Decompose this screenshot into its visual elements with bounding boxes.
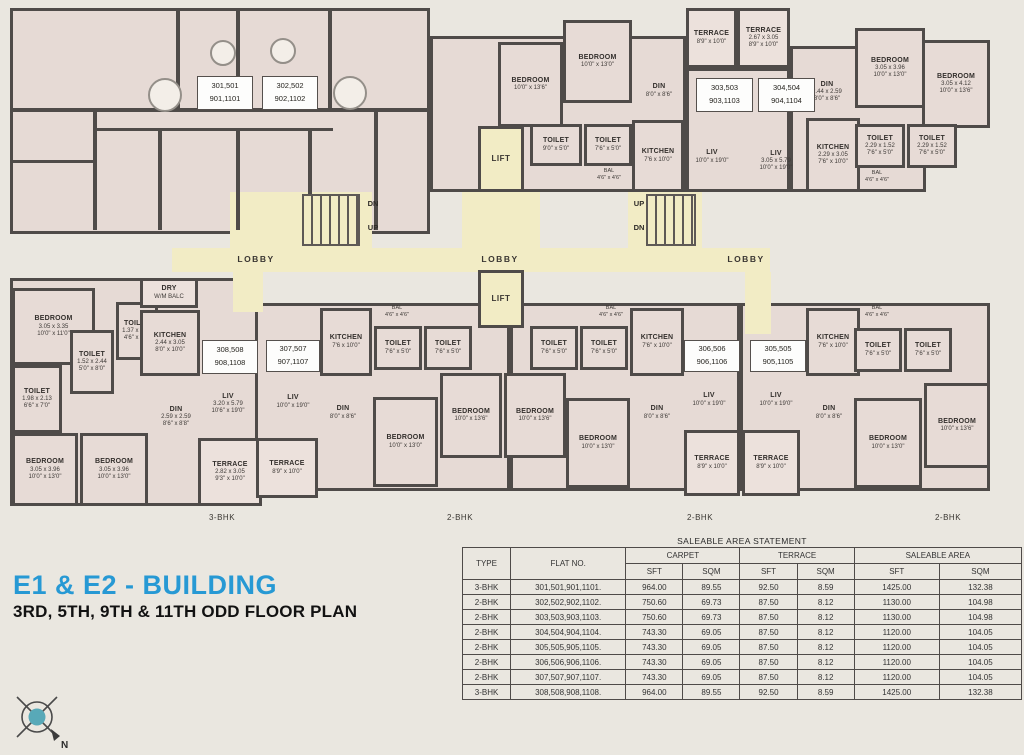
table-cell: 307,507,907,1107. xyxy=(511,670,626,685)
table-cell: 69.05 xyxy=(683,640,740,655)
floor-plan: DNUPUPDNLOBBYLOBBYLOBBYLIFTLIFTBEDROOM10… xyxy=(0,0,1024,536)
table-header-cell: SFT xyxy=(740,564,797,580)
table-cell: 89.55 xyxy=(683,685,740,700)
kitchen-label: 7'6 x 10'0" xyxy=(332,343,359,350)
table-cell: 2-BHK xyxy=(463,610,511,625)
living-label: LIV xyxy=(703,392,715,400)
stair-direction-label: DN xyxy=(634,224,645,233)
dry-balcony-label: DRY xyxy=(161,285,176,293)
dining-table xyxy=(333,76,367,110)
table-header-cell: TERRACE xyxy=(740,548,854,564)
bedroom-label: 10'0" x 13'0" xyxy=(582,444,615,451)
flat-number: 307,507907,1107 xyxy=(266,340,320,372)
kitchen-label: KITCHEN xyxy=(641,334,674,342)
toilet-label: 7'6" x 5'0" xyxy=(915,351,941,358)
table-cell: 308,508,908,1108. xyxy=(511,685,626,700)
toilet-label: TOILET xyxy=(541,340,567,348)
living: LIV10'0" x 19'0" xyxy=(748,386,804,414)
lift: LIFT xyxy=(478,270,524,328)
table-header-cell: CARPET xyxy=(626,548,740,564)
table-cell: 302,502,902,1102. xyxy=(511,595,626,610)
flat-number-label: 902,1102 xyxy=(275,93,306,106)
flat-number: 304,504904,1104 xyxy=(758,78,815,112)
flat-number-label: 903,1103 xyxy=(709,95,740,108)
toilet: TOILET7'6" x 5'0" xyxy=(424,326,472,370)
terrace-label: 8'9" x 10'0" xyxy=(272,469,302,476)
dining-label: 8'6" x 8'8" xyxy=(163,421,189,428)
table-cell: 743.30 xyxy=(626,625,683,640)
wall xyxy=(10,160,95,163)
area-table: TYPEFLAT NO.CARPETTERRACESALEABLE AREASF… xyxy=(462,547,1022,700)
wall xyxy=(374,112,378,230)
flat-number-label: 908,1108 xyxy=(215,357,246,370)
toilet-label: TOILET xyxy=(435,340,461,348)
terrace-label: TERRACE xyxy=(269,460,304,468)
terrace: TERRACE8'9" x 10'0" xyxy=(256,438,318,498)
dining-label: 8'0" x 8'6" xyxy=(814,96,840,103)
table-cell: 1120.00 xyxy=(854,625,939,640)
flat-number-label: 301,501 xyxy=(211,80,238,93)
flat-number: 302,502902,1102 xyxy=(262,76,318,110)
living-label: 10'0" x 19'0" xyxy=(277,403,310,410)
kitchen-label: KITCHEN xyxy=(817,144,850,152)
table-cell: 87.50 xyxy=(740,625,797,640)
terrace-label: 8'9" x 10'0" xyxy=(749,42,779,49)
bedroom: BEDROOM10'0" x 13'6" xyxy=(924,383,990,468)
terrace-label: TERRACE xyxy=(753,455,788,463)
table-cell: 104.05 xyxy=(939,670,1021,685)
table-cell: 2-BHK xyxy=(463,670,511,685)
balcony-table xyxy=(270,38,296,64)
table-cell: 1425.00 xyxy=(854,580,939,595)
kitchen-label: 8'0" x 10'0" xyxy=(155,347,185,354)
balcony: BAL4'6" x 4'6" xyxy=(858,303,896,321)
bedroom-label: 3.05 x 4.12 xyxy=(941,81,971,88)
table-cell: 87.50 xyxy=(740,610,797,625)
bedroom: BEDROOM10'0" x 13'0" xyxy=(566,398,630,488)
table-row: 2-BHK305,505,905,1105.743.3069.0587.508.… xyxy=(463,640,1022,655)
terrace-label: 8'9" x 10'0" xyxy=(697,464,727,471)
bedroom-label: 3.05 x 3.96 xyxy=(30,467,60,474)
bedroom-label: BEDROOM xyxy=(95,458,133,466)
stair-direction: DN xyxy=(626,222,652,234)
flat-number-label: 307,507 xyxy=(279,343,306,356)
table-cell: 303,503,903,1103. xyxy=(511,610,626,625)
kitchen-label: 7'6" x 10'0" xyxy=(818,343,848,350)
table-row: 2-BHK306,506,906,1106.743.3069.0587.508.… xyxy=(463,655,1022,670)
toilet: TOILET1.52 x 2.445'0" x 8'0" xyxy=(70,330,114,394)
flat-number: 301,501901,1101 xyxy=(197,76,253,110)
bedroom-label: 3.05 x 3.35 xyxy=(39,324,69,331)
table-row: 3-BHK308,508,908,1108.964.0089.5592.508.… xyxy=(463,685,1022,700)
lift-label: LIFT xyxy=(492,154,511,163)
table-header-cell: SALEABLE AREA xyxy=(854,548,1021,564)
flat-number-label: 303,503 xyxy=(711,82,738,95)
flat-number: 306,506906,1106 xyxy=(684,340,740,372)
table-row: 2-BHK302,502,902,1102.750.6069.7387.508.… xyxy=(463,595,1022,610)
terrace: TERRACE2.82 x 3.059'3" x 10'0" xyxy=(198,438,262,506)
toilet-label: TOILET xyxy=(915,342,941,350)
unit-type-label: 2-BHK xyxy=(436,511,484,525)
table-cell: 2-BHK xyxy=(463,625,511,640)
living-label: 10'0" x 19'0" xyxy=(760,165,793,172)
toilet-label: 7'6" x 5'0" xyxy=(865,351,891,358)
bedroom-label: 10'0" x 13'6" xyxy=(514,85,547,92)
balcony-label: BAL xyxy=(872,305,882,312)
dining-label: 2.59 x 2.59 xyxy=(161,414,191,421)
living-label: 10'0" x 19'0" xyxy=(760,401,793,408)
terrace-label: TERRACE xyxy=(694,455,729,463)
unit-type-label: 3-BHK xyxy=(198,511,246,525)
dining-label: 8'0" x 8'6" xyxy=(646,92,672,99)
dining: DIN8'0" x 8'6" xyxy=(633,78,685,104)
bedroom: BEDROOM3.05 x 3.9610'0" x 13'0" xyxy=(80,433,148,506)
lobby-stub xyxy=(233,272,263,312)
table-cell: 750.60 xyxy=(626,610,683,625)
table-header-cell: SQM xyxy=(797,564,854,580)
bedroom-label: 10'0" x 13'0" xyxy=(29,474,62,481)
kitchen: KITCHEN2.44 x 3.058'0" x 10'0" xyxy=(140,310,200,376)
unit-type-label-label: 2-BHK xyxy=(687,513,713,522)
toilet-label: 7'6" x 5'0" xyxy=(591,349,617,356)
bedroom-label: BEDROOM xyxy=(35,315,73,323)
dining-label: DIN xyxy=(823,405,836,413)
toilet-label: TOILET xyxy=(543,137,569,145)
balcony-label: 4'6" x 4'6" xyxy=(865,177,889,184)
living-label: LIV xyxy=(770,392,782,400)
table-header-cell: SQM xyxy=(939,564,1021,580)
balcony-label: BAL xyxy=(392,305,402,312)
toilet: TOILET1.98 x 2.136'6" x 7'0" xyxy=(12,365,62,433)
unit-type-label: 2-BHK xyxy=(924,511,972,525)
flat-number: 305,505905,1105 xyxy=(750,340,806,372)
kitchen-label: 7'6 x 10'0" xyxy=(644,157,671,164)
stair-direction-label: UP xyxy=(368,224,378,233)
bedroom-label: BEDROOM xyxy=(452,408,490,416)
balcony: BAL4'6" x 4'6" xyxy=(858,168,896,186)
flat-number-label: 304,504 xyxy=(773,82,800,95)
terrace-label: TERRACE xyxy=(746,27,781,35)
table-cell: 8.12 xyxy=(797,595,854,610)
dining: DIN2.59 x 2.598'6" x 8'8" xyxy=(148,400,204,434)
wall xyxy=(236,128,240,230)
flat-number-label: 305,505 xyxy=(764,343,791,356)
balcony-label: BAL xyxy=(872,170,882,177)
toilet-label: 7'6" x 5'0" xyxy=(541,349,567,356)
terrace-label: 8'9" x 10'0" xyxy=(697,39,727,46)
table-cell: 69.73 xyxy=(683,595,740,610)
kitchen-label: KITCHEN xyxy=(154,332,187,340)
toilet-label: TOILET xyxy=(865,342,891,350)
stair-direction: UP xyxy=(626,198,652,210)
bedroom: BEDROOM10'0" x 13'6" xyxy=(440,373,502,458)
table-cell: 1120.00 xyxy=(854,670,939,685)
kitchen: KITCHEN7'6 x 10'0" xyxy=(632,120,684,192)
flat-number-label: 308,508 xyxy=(216,344,243,357)
table-cell: 1425.00 xyxy=(854,685,939,700)
lift-label: LIFT xyxy=(492,294,511,303)
unit-type-label-label: 2-BHK xyxy=(447,513,473,522)
table-cell: 8.12 xyxy=(797,610,854,625)
table-row: 2-BHK307,507,907,1107.743.3069.0587.508.… xyxy=(463,670,1022,685)
lobby-label: LOBBY xyxy=(228,250,284,268)
lobby-label-label: LOBBY xyxy=(481,254,518,264)
balcony-label: BAL xyxy=(606,305,616,312)
living: LIV10'0" x 19'0" xyxy=(266,388,320,416)
bedroom: BEDROOM10'0" x 13'0" xyxy=(563,20,632,103)
bedroom-label: 10'0" x 13'0" xyxy=(98,474,131,481)
table-header-cell: FLAT NO. xyxy=(511,548,626,580)
living-label: LIV xyxy=(770,150,782,158)
bedroom-label: 10'0" x 13'6" xyxy=(519,416,552,423)
bedroom-label: BEDROOM xyxy=(516,408,554,416)
bedroom: BEDROOM10'0" x 13'0" xyxy=(854,398,922,488)
staircase xyxy=(302,194,360,246)
balcony: BAL4'6" x 4'6" xyxy=(592,303,630,321)
table-cell: 92.50 xyxy=(740,580,797,595)
flat-number: 308,508908,1108 xyxy=(202,340,258,374)
bedroom-label: BEDROOM xyxy=(871,57,909,65)
wall xyxy=(328,8,332,110)
kitchen-label: KITCHEN xyxy=(642,148,675,156)
kitchen-label: 2.44 x 3.05 xyxy=(155,340,185,347)
toilet: TOILET7'6" x 5'0" xyxy=(530,326,578,370)
unit-type-label: 2-BHK xyxy=(676,511,724,525)
toilet-label: 2.29 x 1.52 xyxy=(865,143,895,150)
kitchen: KITCHEN2.29 x 3.057'6" x 10'0" xyxy=(806,118,860,192)
lift: LIFT xyxy=(478,126,524,192)
dining-label: 2.44 x 2.59 xyxy=(812,89,842,96)
bedroom-label: 3.05 x 3.96 xyxy=(99,467,129,474)
dining-label: 8'0" x 8'6" xyxy=(330,414,356,421)
living-label: 10'0" x 19'0" xyxy=(693,401,726,408)
stair-direction: DN xyxy=(360,198,386,210)
table-cell: 304,504,904,1104. xyxy=(511,625,626,640)
dining-label: DIN xyxy=(170,406,183,414)
table-cell: 3-BHK xyxy=(463,580,511,595)
living: LIV3.20 x 5.7910'6" x 19'0" xyxy=(198,386,258,422)
table-cell: 743.30 xyxy=(626,655,683,670)
toilet-label: 2.29 x 1.52 xyxy=(917,143,947,150)
terrace: TERRACE8'9" x 10'0" xyxy=(742,430,800,496)
table-cell: 1130.00 xyxy=(854,595,939,610)
toilet-label: 1.98 x 2.13 xyxy=(22,396,52,403)
flat-number: 303,503903,1103 xyxy=(696,78,753,112)
bedroom-label: 10'0" x 13'0" xyxy=(581,62,614,69)
toilet-label: TOILET xyxy=(24,388,50,396)
bedroom-label: BEDROOM xyxy=(512,77,550,85)
toilet-label: TOILET xyxy=(385,340,411,348)
balcony-label: 4'6" x 4'6" xyxy=(599,312,623,319)
lobby-label: LOBBY xyxy=(472,250,528,268)
kitchen-label: 7'6" x 10'0" xyxy=(642,343,672,350)
table-header-cell: TYPE xyxy=(463,548,511,580)
bedroom-label: BEDROOM xyxy=(387,434,425,442)
table-cell: 8.12 xyxy=(797,655,854,670)
dining: DIN8'0" x 8'6" xyxy=(804,400,854,426)
title-block: E1 & E2 - BUILDING 3RD, 5TH, 9TH & 11TH … xyxy=(13,570,357,622)
toilet-label: 5'0" x 8'0" xyxy=(79,366,105,373)
living-label: 3.20 x 5.79 xyxy=(213,401,243,408)
table-title: SALEABLE AREA STATEMENT xyxy=(462,536,1022,546)
table-cell: 104.05 xyxy=(939,640,1021,655)
dining-label: DIN xyxy=(651,405,664,413)
table-cell: 8.12 xyxy=(797,640,854,655)
toilet-label: 7'6" x 5'0" xyxy=(867,150,893,157)
table-cell: 1120.00 xyxy=(854,640,939,655)
dining-table xyxy=(148,78,182,112)
table-cell: 2-BHK xyxy=(463,595,511,610)
compass-icon: N xyxy=(8,688,68,755)
balcony: BAL4'6" x 4'6" xyxy=(378,303,416,321)
toilet-label: TOILET xyxy=(79,351,105,359)
table-cell: 743.30 xyxy=(626,640,683,655)
table-cell: 8.59 xyxy=(797,580,854,595)
lobby-stub xyxy=(745,272,771,334)
living: LIV10'0" x 19'0" xyxy=(682,386,736,414)
kitchen-label: 7'6" x 10'0" xyxy=(818,159,848,166)
table-cell: 69.73 xyxy=(683,610,740,625)
table-cell: 8.12 xyxy=(797,625,854,640)
toilet-label: 7'6" x 5'0" xyxy=(919,150,945,157)
kitchen: KITCHEN7'6" x 10'0" xyxy=(806,308,860,376)
table-cell: 69.05 xyxy=(683,625,740,640)
lobby-label-label: LOBBY xyxy=(727,254,764,264)
table-cell: 1120.00 xyxy=(854,655,939,670)
flat-number-label: 906,1106 xyxy=(697,356,728,369)
bedroom-label: BEDROOM xyxy=(938,418,976,426)
bedroom: BEDROOM3.05 x 3.9610'0" x 13'0" xyxy=(855,28,925,108)
terrace-label: 2.82 x 3.05 xyxy=(215,469,245,476)
table-cell: 132.38 xyxy=(939,580,1021,595)
bedroom-label: BEDROOM xyxy=(937,73,975,81)
unit-type-label-label: 3-BHK xyxy=(209,513,235,522)
dry-balcony: DRYW/M BALC xyxy=(140,278,198,308)
living-label: 10'6" x 19'0" xyxy=(212,408,245,415)
wall xyxy=(95,128,333,131)
table-cell: 964.00 xyxy=(626,685,683,700)
table-cell: 69.05 xyxy=(683,670,740,685)
table-row: 2-BHK303,503,903,1103.750.6069.7387.508.… xyxy=(463,610,1022,625)
table-row: 3-BHK301,501,901,1101.964.0089.5592.508.… xyxy=(463,580,1022,595)
table-cell: 3-BHK xyxy=(463,685,511,700)
dry-balcony-label: W/M BALC xyxy=(154,294,184,301)
stair-direction-label: DN xyxy=(368,200,379,209)
bedroom-label: 10'0" x 11'0" xyxy=(37,331,69,338)
bedroom: BEDROOM10'0" x 13'0" xyxy=(373,397,438,487)
saleable-area-statement: SALEABLE AREA STATEMENT TYPEFLAT NO.CARP… xyxy=(462,536,1022,700)
terrace-label: TERRACE xyxy=(212,461,247,469)
toilet-label: 1.52 x 2.44 xyxy=(77,359,107,366)
terrace-label: TERRACE xyxy=(694,30,729,38)
bedroom: BEDROOM3.05 x 3.9610'0" x 13'0" xyxy=(12,433,78,506)
living: LIV3.05 x 5.7910'0" x 19'0" xyxy=(746,142,806,180)
table-cell: 92.50 xyxy=(740,685,797,700)
terrace-label: 2.67 x 3.05 xyxy=(749,35,779,42)
lobby-label-label: LOBBY xyxy=(237,254,274,264)
living-label: 3.05 x 5.79 xyxy=(761,158,791,165)
living-label: LIV xyxy=(287,394,299,402)
toilet-label: 7'6" x 5'0" xyxy=(385,349,411,356)
toilet-label: TOILET xyxy=(595,137,621,145)
kitchen: KITCHEN7'6 x 10'0" xyxy=(320,308,372,376)
toilet: TOILET7'6" x 5'0" xyxy=(854,328,902,372)
flat-number-label: 901,1101 xyxy=(210,93,241,106)
toilet-label: TOILET xyxy=(919,135,945,143)
staircase xyxy=(646,194,696,246)
table-row: 2-BHK304,504,904,1104.743.3069.0587.508.… xyxy=(463,625,1022,640)
toilet-label: 7'6" x 5'0" xyxy=(595,146,621,153)
floor-subtitle: 3RD, 5TH, 9TH & 11TH ODD FLOOR PLAN xyxy=(13,602,357,622)
table-header-cell: SQM xyxy=(683,564,740,580)
bedroom-label: 10'0" x 13'0" xyxy=(874,72,907,79)
table-cell: 104.05 xyxy=(939,625,1021,640)
building-title: E1 & E2 - BUILDING xyxy=(13,570,357,601)
table-cell: 104.98 xyxy=(939,595,1021,610)
table-cell: 301,501,901,1101. xyxy=(511,580,626,595)
dining-label: 8'0" x 8'6" xyxy=(644,414,670,421)
table-cell: 8.12 xyxy=(797,670,854,685)
table-cell: 2-BHK xyxy=(463,655,511,670)
bedroom-label: 10'0" x 13'6" xyxy=(940,88,973,95)
flat-number-label: 302,502 xyxy=(276,80,303,93)
dining-label: DIN xyxy=(653,83,666,91)
table-cell: 964.00 xyxy=(626,580,683,595)
terrace-label: 9'3" x 10'0" xyxy=(215,476,245,483)
table-header-row: TYPEFLAT NO.CARPETTERRACESALEABLE AREA xyxy=(463,548,1022,564)
kitchen-label: KITCHEN xyxy=(817,334,850,342)
kitchen: KITCHEN7'6" x 10'0" xyxy=(630,308,684,376)
stair-direction-label: UP xyxy=(634,200,644,209)
toilet: TOILET7'6" x 5'0" xyxy=(904,328,952,372)
dining-label: 8'0" x 8'6" xyxy=(816,414,842,421)
floor-plan-page: { "title_block": { "building": "E1 & E2 … xyxy=(0,0,1024,755)
table-cell: 1130.00 xyxy=(854,610,939,625)
terrace: TERRACE8'9" x 10'0" xyxy=(684,430,740,496)
stair-direction: UP xyxy=(360,222,386,234)
flat-number-label: 905,1105 xyxy=(763,356,794,369)
toilet: TOILET2.29 x 1.527'6" x 5'0" xyxy=(907,124,957,168)
living-label: 10'0" x 19'0" xyxy=(696,158,729,165)
kitchen-label: 2.29 x 3.05 xyxy=(818,152,848,159)
compass-north-label: N xyxy=(61,740,68,750)
table-cell: 69.05 xyxy=(683,655,740,670)
table-cell: 305,505,905,1105. xyxy=(511,640,626,655)
bedroom-label: 10'0" x 13'6" xyxy=(941,426,974,433)
toilet: TOILET2.29 x 1.527'6" x 5'0" xyxy=(855,124,905,168)
dining: DIN8'0" x 8'6" xyxy=(318,400,368,426)
table-cell: 89.55 xyxy=(683,580,740,595)
table-cell: 306,506,906,1106. xyxy=(511,655,626,670)
toilet: TOILET7'6" x 5'0" xyxy=(580,326,628,370)
bedroom-label: 10'0" x 13'0" xyxy=(389,443,422,450)
toilet-label: 9'0" x 5'0" xyxy=(543,146,569,153)
toilet-label: 7'6" x 5'0" xyxy=(435,349,461,356)
flat-number-label: 306,506 xyxy=(698,343,725,356)
table-cell: 750.60 xyxy=(626,595,683,610)
table-cell: 743.30 xyxy=(626,670,683,685)
table-cell: 132.38 xyxy=(939,685,1021,700)
kitchen-label: KITCHEN xyxy=(330,334,363,342)
bedroom-label: BEDROOM xyxy=(579,54,617,62)
table-cell: 87.50 xyxy=(740,595,797,610)
terrace: TERRACE8'9" x 10'0" xyxy=(686,8,737,68)
toilet: TOILET9'0" x 5'0" xyxy=(530,124,582,166)
table-cell: 87.50 xyxy=(740,640,797,655)
table-header-cell: SFT xyxy=(854,564,939,580)
flat-number-label: 907,1107 xyxy=(278,356,309,369)
bedroom-label: 10'0" x 13'6" xyxy=(455,416,488,423)
